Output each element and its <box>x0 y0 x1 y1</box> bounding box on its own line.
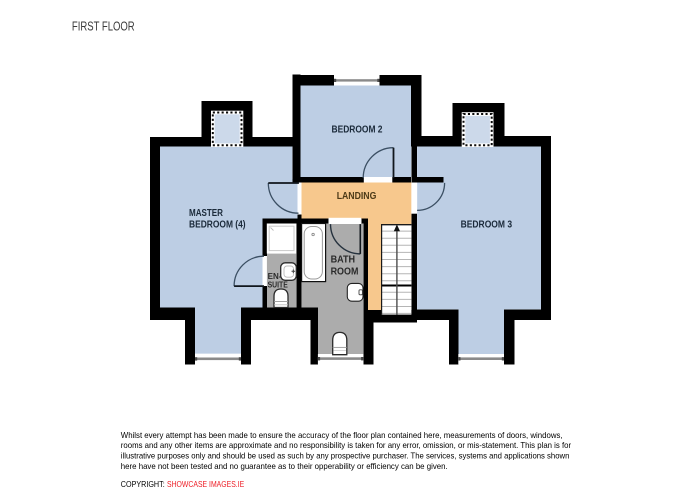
svg-text:SHOWCASE IMAGES.IE: SHOWCASE IMAGES.IE <box>167 479 245 489</box>
svg-text:BEDROOM 2: BEDROOM 2 <box>332 125 383 136</box>
svg-text:FIRST FLOOR: FIRST FLOOR <box>72 19 135 33</box>
svg-text:SUITE: SUITE <box>268 279 288 289</box>
svg-text:ROOM: ROOM <box>331 267 359 278</box>
svg-text:rooms and any other items are: rooms and any other items are approximat… <box>121 440 572 450</box>
svg-text:BEDROOM 3: BEDROOM 3 <box>461 220 513 231</box>
svg-text:MASTER: MASTER <box>189 208 224 219</box>
svg-text:Whilst every attempt has been: Whilst every attempt has been made to en… <box>121 430 563 440</box>
svg-text:illustrative purposes only and: illustrative purposes only and should be… <box>121 451 570 461</box>
svg-text:here have not been tested and: here have not been tested and no guarant… <box>121 461 448 471</box>
svg-text:BATH: BATH <box>331 254 356 265</box>
svg-text:LANDING: LANDING <box>337 191 377 202</box>
svg-text:BEDROOM (4): BEDROOM (4) <box>189 220 246 231</box>
svg-text:COPYRIGHT:: COPYRIGHT: <box>121 479 165 489</box>
